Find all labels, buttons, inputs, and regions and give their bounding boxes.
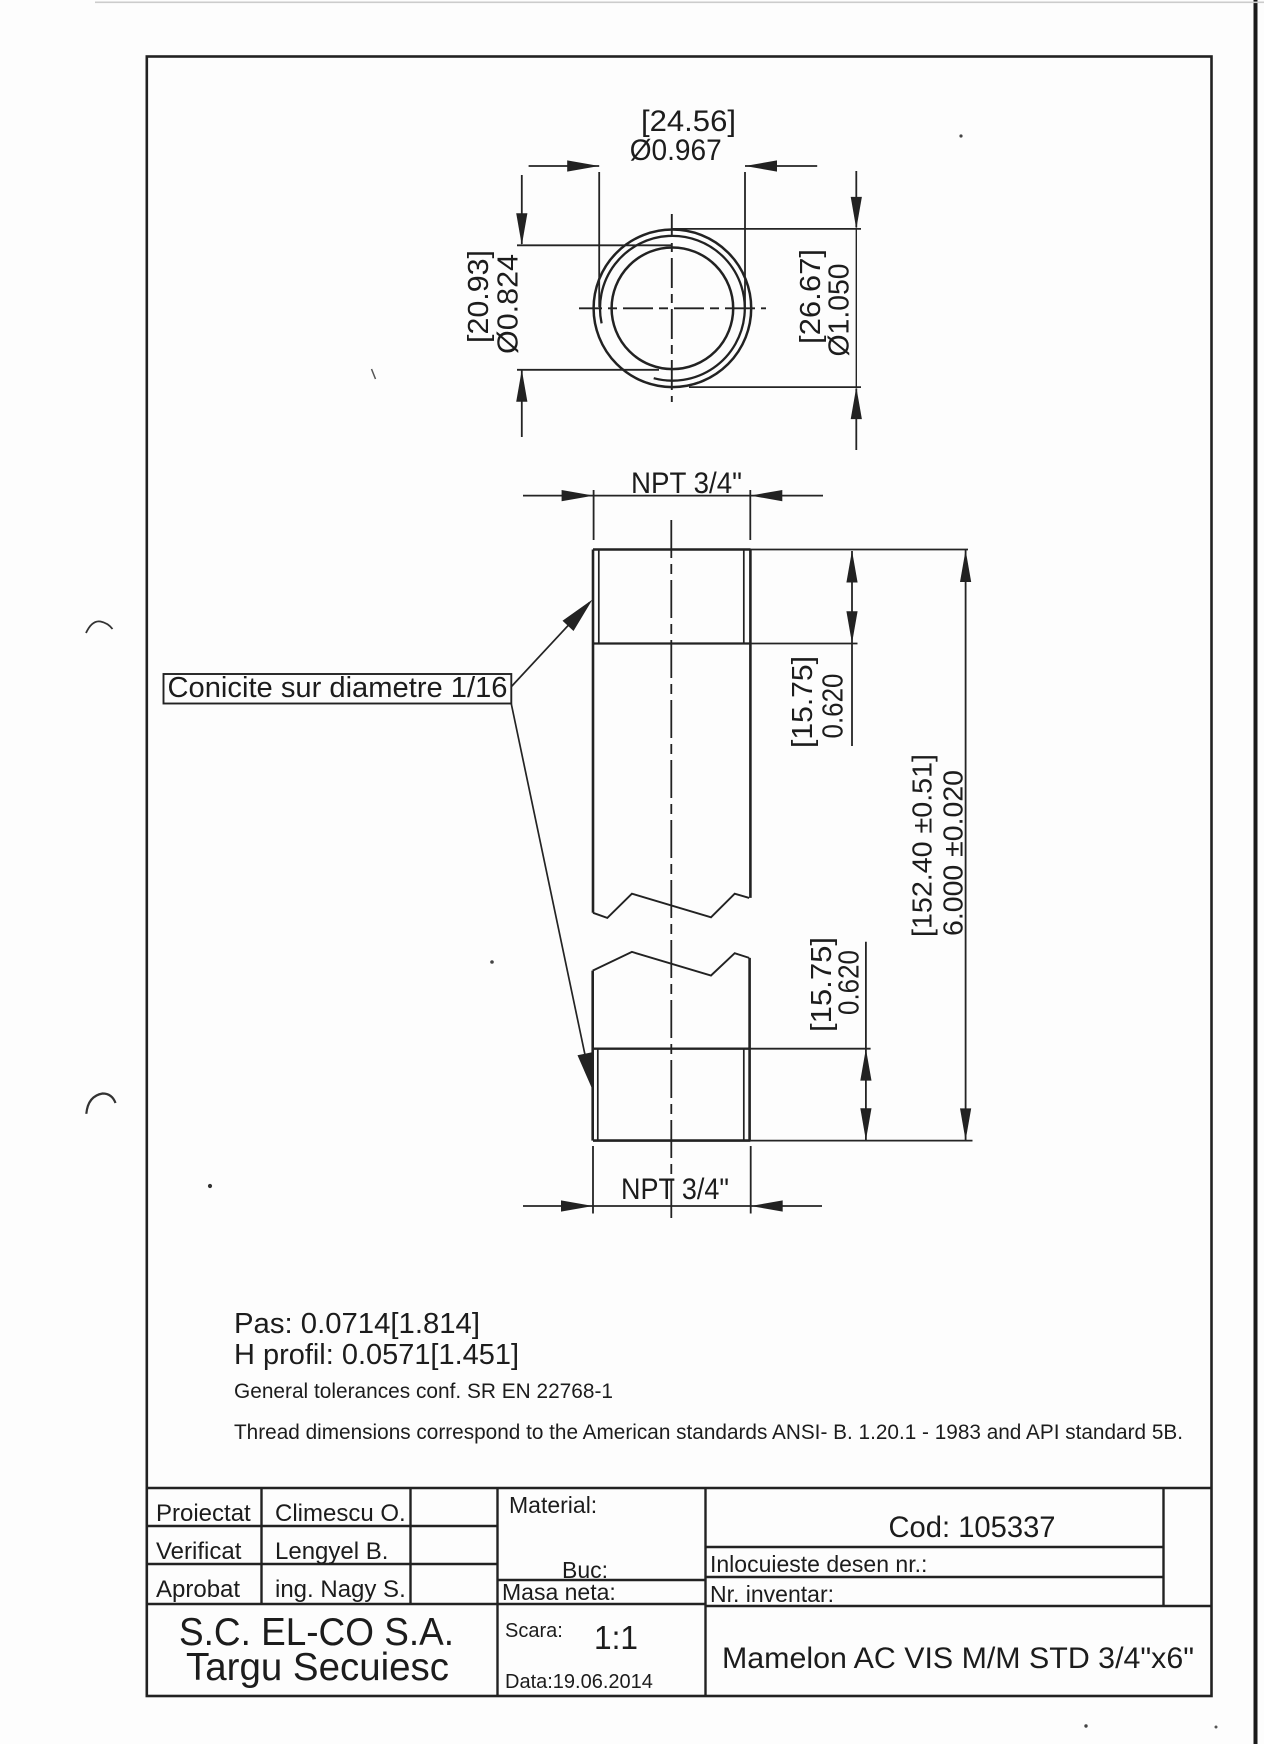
svg-text:Ø0.824: Ø0.824 <box>493 254 525 354</box>
svg-text:Proiectat: Proiectat <box>156 1500 251 1527</box>
svg-text:Thread dimensions correspond t: Thread dimensions correspond to the Amer… <box>234 1421 1183 1444</box>
svg-text:[15.75]: [15.75] <box>787 656 819 748</box>
svg-text:Data:19.06.2014: Data:19.06.2014 <box>505 1671 653 1693</box>
svg-text:6.000 ±0.020: 6.000 ±0.020 <box>938 770 969 936</box>
svg-text:Ø1.050: Ø1.050 <box>824 264 856 357</box>
svg-text:Climescu O.: Climescu O. <box>275 1500 406 1527</box>
svg-text:Material:: Material: <box>509 1492 597 1518</box>
svg-text:Verificat: Verificat <box>156 1538 242 1565</box>
svg-text:Ø0.967: Ø0.967 <box>630 134 722 167</box>
svg-text:ing. Nagy S.: ing. Nagy S. <box>275 1576 406 1603</box>
svg-text:Masa neta:: Masa neta: <box>502 1579 616 1605</box>
svg-text:Cod: 105337: Cod: 105337 <box>889 1511 1056 1544</box>
svg-text:Lengyel B.: Lengyel B. <box>275 1538 388 1565</box>
svg-text:Nr. inventar:: Nr. inventar: <box>710 1581 834 1607</box>
svg-text:[152.40 ±0.51]: [152.40 ±0.51] <box>907 754 938 937</box>
svg-text:Mamelon AC VIS M/M STD 3/4"x6": Mamelon AC VIS M/M STD 3/4"x6" <box>722 1642 1194 1675</box>
svg-text:NPT 3/4": NPT 3/4" <box>621 1173 729 1206</box>
svg-text:Scara:: Scara: <box>505 1620 563 1642</box>
svg-text:Inlocuieste desen nr.:: Inlocuieste desen nr.: <box>710 1551 927 1577</box>
svg-text:0.620: 0.620 <box>818 674 850 739</box>
svg-text:Aprobat: Aprobat <box>156 1576 240 1603</box>
svg-text:Targu Secuiesc: Targu Secuiesc <box>186 1646 449 1689</box>
svg-text:1:1: 1:1 <box>594 1619 638 1656</box>
svg-text:[26.67]: [26.67] <box>795 249 827 344</box>
svg-text:H profil: 0.0571[1.451]: H profil: 0.0571[1.451] <box>234 1339 519 1371</box>
svg-text:Conicite sur diametre 1/16: Conicite sur diametre 1/16 <box>168 672 508 704</box>
svg-text:0.620: 0.620 <box>834 950 866 1015</box>
svg-text:General tolerances conf. SR EN: General tolerances conf. SR EN 22768-1 <box>234 1380 613 1403</box>
svg-text:Pas: 0.0714[1.814]: Pas: 0.0714[1.814] <box>234 1308 480 1340</box>
svg-text:[20.93]: [20.93] <box>463 250 495 343</box>
